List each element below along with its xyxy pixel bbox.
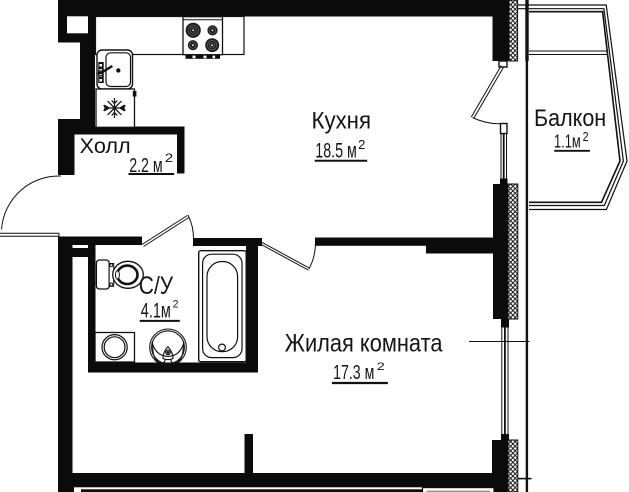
svg-text:Балкон: Балкон xyxy=(534,105,606,132)
svg-text:С/У: С/У xyxy=(139,273,174,300)
svg-text:4.1м: 4.1м xyxy=(141,299,171,322)
svg-text:2: 2 xyxy=(173,299,179,311)
svg-text:2: 2 xyxy=(583,129,589,144)
svg-text:Жилая комната: Жилая комната xyxy=(285,331,443,358)
svg-text:2: 2 xyxy=(358,138,365,152)
svg-text:Холл: Холл xyxy=(80,134,131,158)
svg-text:18.5 м: 18.5 м xyxy=(315,139,357,163)
svg-text:17.3 м: 17.3 м xyxy=(333,361,374,384)
svg-text:1.1м: 1.1м xyxy=(554,131,581,152)
svg-text:2: 2 xyxy=(165,151,173,165)
svg-text:2: 2 xyxy=(377,361,385,373)
svg-text:Кухня: Кухня xyxy=(312,108,372,135)
